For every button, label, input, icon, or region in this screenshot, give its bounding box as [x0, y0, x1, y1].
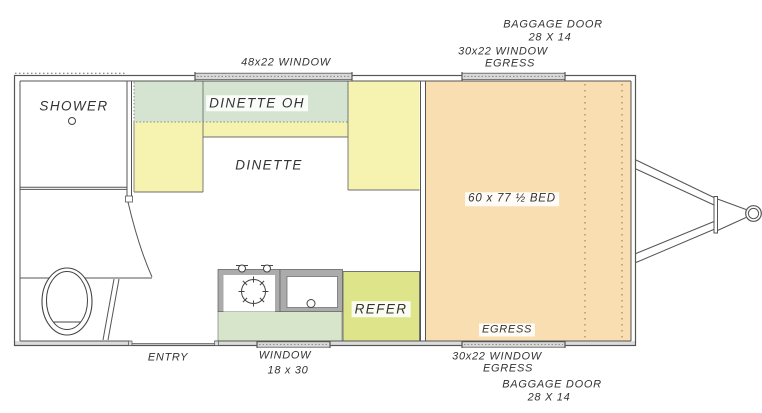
label-dinette-oh: DINETTE OH: [206, 95, 308, 111]
bed-partition-wall: [421, 81, 426, 341]
label-egress-bottom: EGRESS: [483, 364, 533, 375]
shower-drain-icon: [69, 118, 76, 125]
label-window-48x22: 48x22 WINDOW: [241, 58, 331, 69]
stove: [218, 265, 280, 312]
label-egress-top: EGRESS: [485, 59, 535, 70]
travel-trailer-floorplan: BAGGAGE DOOR 28 X 14 30x22 WINDOW EGRESS…: [0, 0, 762, 413]
label-dinette: DINETTE: [235, 158, 303, 172]
label-window-30x22-top: 30x22 WINDOW: [458, 47, 548, 58]
window-marker-18x30-bottom: [257, 341, 330, 348]
toilet: [42, 268, 92, 335]
label-refer: REFER: [352, 301, 411, 317]
window-marker-30x22-top: [462, 72, 565, 81]
floorplan-drawing: [0, 0, 762, 413]
label-shower: SHOWER: [39, 99, 108, 113]
shower-room: [15, 73, 133, 202]
hitch-tongue: [636, 160, 761, 263]
label-window-bottom-size: 18 x 30: [268, 366, 309, 377]
door-swing-curve: [128, 202, 152, 277]
entry-door-leaf: [103, 279, 119, 340]
bathroom: [20, 202, 152, 340]
sink-drain-icon: [307, 300, 315, 308]
window-marker-48x22-top: [195, 72, 352, 81]
label-bed-egress: EGRESS: [479, 324, 535, 337]
label-baggage-door-top: BAGGAGE DOOR: [503, 20, 602, 31]
label-window-bottom: WINDOW: [259, 351, 311, 362]
window-marker-30x22-bottom: [462, 341, 565, 348]
kitchen-counter: [218, 311, 342, 341]
label-baggage-door-top-size: 28 X 14: [529, 33, 572, 44]
label-window-30x22-bottom: 30x22 WINDOW: [452, 352, 542, 363]
bed-area: [426, 81, 631, 341]
label-entry: ENTRY: [148, 353, 188, 364]
label-baggage-door-bottom-size: 28 X 14: [528, 393, 571, 404]
label-baggage-door-bottom: BAGGAGE DOOR: [502, 380, 601, 391]
sink: [280, 270, 343, 312]
label-bed-size: 60 x 77 ½ BED: [465, 192, 559, 206]
